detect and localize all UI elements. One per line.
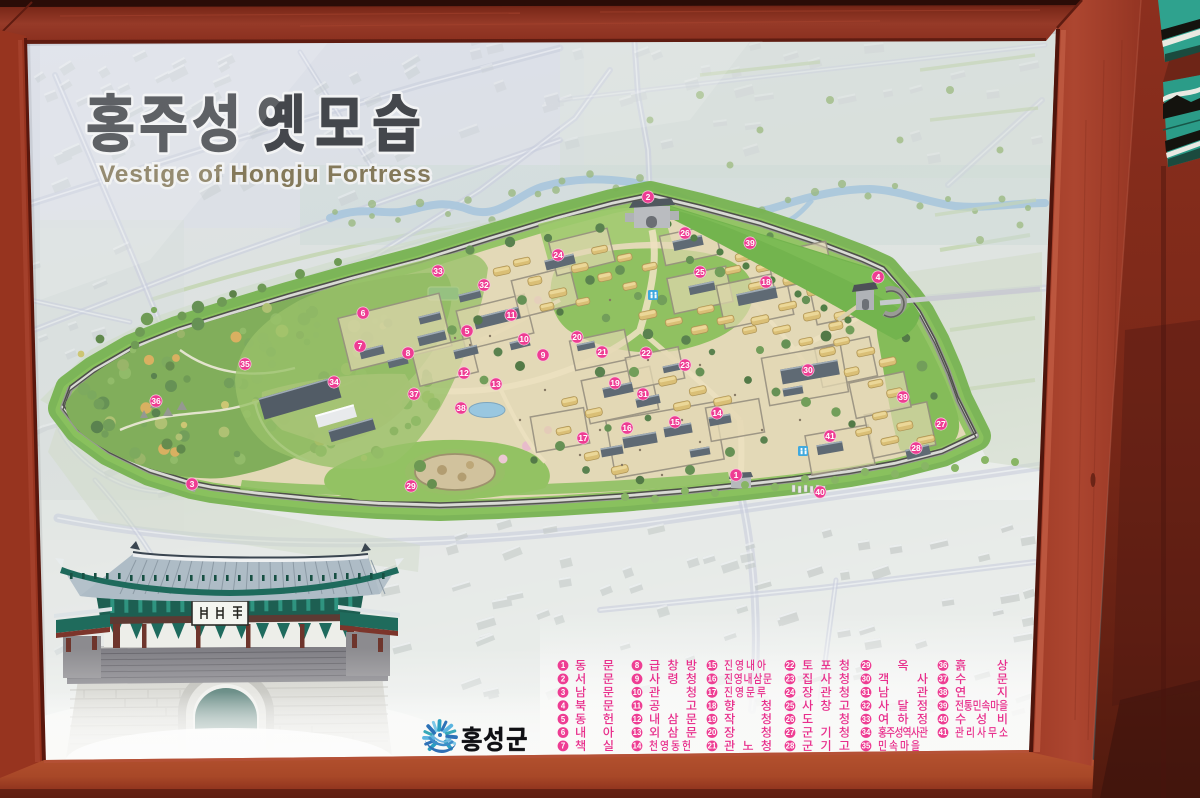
svg-text:31: 31 — [862, 688, 871, 697]
svg-text:17: 17 — [578, 433, 588, 443]
svg-text:17: 17 — [708, 688, 717, 697]
svg-text:1: 1 — [734, 470, 739, 480]
svg-text:41: 41 — [825, 431, 835, 441]
svg-text:6: 6 — [361, 308, 366, 318]
svg-text:11: 11 — [633, 701, 642, 710]
svg-text:35: 35 — [862, 742, 871, 751]
svg-text:32: 32 — [479, 280, 489, 290]
svg-text:38: 38 — [456, 403, 466, 413]
svg-text:18: 18 — [708, 701, 717, 710]
svg-text:35: 35 — [240, 359, 250, 369]
svg-text:5: 5 — [465, 326, 470, 336]
svg-text:15: 15 — [670, 417, 680, 427]
svg-text:38: 38 — [939, 688, 948, 697]
svg-text:37: 37 — [939, 675, 948, 684]
svg-text:9: 9 — [541, 350, 546, 360]
svg-text:23: 23 — [680, 360, 690, 370]
svg-text:28: 28 — [786, 742, 795, 751]
svg-text:7: 7 — [358, 341, 363, 351]
svg-text:2: 2 — [561, 675, 566, 684]
svg-text:19: 19 — [610, 378, 620, 388]
svg-text:3: 3 — [561, 688, 566, 697]
svg-text:12: 12 — [633, 715, 642, 724]
svg-text:3: 3 — [190, 479, 195, 489]
svg-text:26: 26 — [786, 715, 795, 724]
svg-text:23: 23 — [786, 675, 795, 684]
svg-text:22: 22 — [641, 348, 651, 358]
svg-text:24: 24 — [786, 688, 795, 697]
svg-text:8: 8 — [406, 348, 411, 358]
svg-text:19: 19 — [708, 715, 717, 724]
svg-text:11: 11 — [506, 310, 515, 320]
svg-text:10: 10 — [633, 688, 642, 697]
svg-text:13: 13 — [633, 728, 642, 737]
svg-text:41: 41 — [939, 728, 948, 737]
svg-text:29: 29 — [862, 661, 871, 670]
svg-text:8: 8 — [635, 661, 640, 670]
svg-text:36: 36 — [151, 396, 161, 406]
svg-text:34: 34 — [862, 728, 871, 737]
svg-text:21: 21 — [597, 347, 607, 357]
svg-text:10: 10 — [519, 334, 529, 344]
svg-text:16: 16 — [622, 423, 632, 433]
svg-text:40: 40 — [939, 715, 948, 724]
svg-text:37: 37 — [409, 389, 419, 399]
svg-text:2: 2 — [646, 192, 651, 202]
svg-text:15: 15 — [708, 661, 717, 670]
svg-text:25: 25 — [786, 701, 795, 710]
svg-text:20: 20 — [572, 332, 582, 342]
svg-text:5: 5 — [561, 715, 566, 724]
svg-text:4: 4 — [876, 272, 881, 282]
svg-text:9: 9 — [635, 675, 640, 684]
svg-text:39: 39 — [745, 238, 755, 248]
svg-text:18: 18 — [761, 277, 771, 287]
svg-text:29: 29 — [406, 481, 416, 491]
svg-text:28: 28 — [911, 443, 921, 453]
svg-text:30: 30 — [862, 675, 871, 684]
svg-text:13: 13 — [491, 379, 501, 389]
svg-text:30: 30 — [803, 365, 813, 375]
svg-text:21: 21 — [708, 742, 717, 751]
svg-text:39: 39 — [898, 392, 908, 402]
svg-text:12: 12 — [459, 368, 469, 378]
svg-text:32: 32 — [862, 701, 871, 710]
svg-text:16: 16 — [708, 675, 717, 684]
svg-text:40: 40 — [815, 487, 825, 497]
svg-text:25: 25 — [695, 267, 705, 277]
svg-text:26: 26 — [680, 228, 690, 238]
svg-text:7: 7 — [561, 742, 565, 751]
svg-text:14: 14 — [633, 742, 642, 751]
svg-text:33: 33 — [862, 715, 871, 724]
svg-text:39: 39 — [939, 701, 948, 710]
svg-text:22: 22 — [786, 661, 795, 670]
svg-text:20: 20 — [708, 728, 717, 737]
svg-text:6: 6 — [561, 728, 566, 737]
svg-text:4: 4 — [561, 701, 566, 710]
svg-text:33: 33 — [433, 266, 443, 276]
svg-text:36: 36 — [939, 661, 948, 670]
svg-text:27: 27 — [936, 419, 946, 429]
svg-text:1: 1 — [561, 661, 566, 670]
svg-text:27: 27 — [786, 728, 795, 737]
svg-text:34: 34 — [329, 377, 339, 387]
svg-text:31: 31 — [638, 389, 648, 399]
svg-text:14: 14 — [712, 408, 722, 418]
svg-text:24: 24 — [553, 250, 563, 260]
